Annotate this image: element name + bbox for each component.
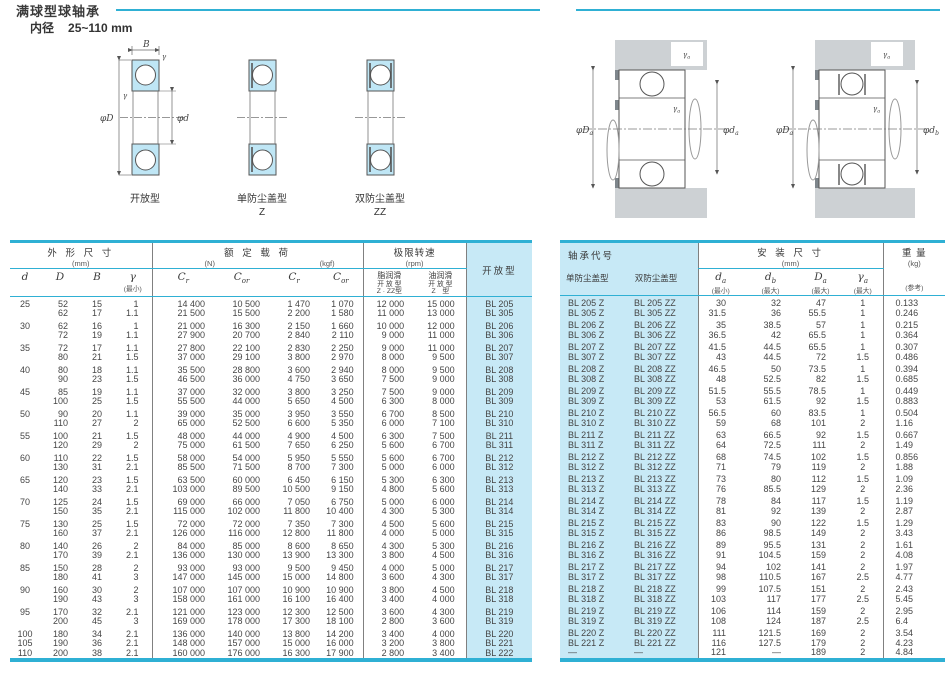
cell: 4 000 <box>415 595 466 605</box>
cell: 41 <box>80 573 114 583</box>
table-row: BL 206 ZBL 206 ZZ3538.55710.215 <box>560 318 945 331</box>
cell: BL 309 Z <box>560 397 626 407</box>
cell: 3 400 <box>415 649 466 659</box>
cell: 78.5 <box>798 384 843 397</box>
table-row: 90160302107 000107 00010 90010 9003 8004… <box>10 583 532 596</box>
table-row: 306216121 00016 3002 1501 66010 00012 00… <box>10 319 532 332</box>
cell: 44 000 <box>214 429 269 442</box>
cell: 6 000 <box>415 463 466 473</box>
cell: 2 <box>114 419 152 429</box>
cell <box>10 485 40 495</box>
cell: 3 950 <box>269 407 319 420</box>
cell: 1.5 <box>843 472 883 485</box>
cell: 120 <box>40 473 80 486</box>
cell: 89 <box>698 538 743 551</box>
cell: 80 <box>40 353 80 363</box>
cell: 52 <box>40 296 80 309</box>
cell: 2 <box>843 648 883 658</box>
bearing-diagram-zz <box>355 60 407 175</box>
cell: 200 <box>40 617 80 627</box>
cell: 110 <box>40 419 80 429</box>
cell: 83 <box>698 516 743 529</box>
cell: 2 <box>843 529 883 539</box>
cell: 2 840 <box>269 331 319 341</box>
cell: 74.5 <box>743 450 798 463</box>
cell: 141 <box>798 560 843 573</box>
col-Da: Da(最大) <box>798 269 843 296</box>
cell: 129 <box>798 485 843 495</box>
cell: BL 306 ZZ <box>626 331 698 341</box>
left-table-body: 255215114 40010 5001 4701 07012 00015 00… <box>10 296 532 658</box>
cell: 187 <box>798 617 843 627</box>
table-row: 3572171.127 80022 1002 8302 2509 00011 0… <box>10 341 532 354</box>
cell: BL 209 ZZ <box>626 384 698 397</box>
cell: 68 <box>698 450 743 463</box>
cell: 60 <box>743 406 798 419</box>
cell: 5 350 <box>319 419 363 429</box>
cell: 12 500 <box>319 605 363 618</box>
cell: 66 000 <box>214 495 269 508</box>
cell: 45 <box>10 385 40 398</box>
cell: 3 600 <box>363 573 415 583</box>
title-rule-left <box>116 9 540 11</box>
table-row: BL 207 ZBL 207 ZZ41.544.565.510.307 <box>560 340 945 353</box>
cell: 18 <box>80 363 114 376</box>
table-row: 160372.1126 000116 00012 80011 8004 0005… <box>10 529 532 539</box>
cell: BL 220 ZZ <box>626 626 698 639</box>
cell <box>10 573 40 583</box>
cell <box>10 375 40 385</box>
cell: 4 800 <box>363 485 415 495</box>
col-da: da(最小) <box>698 269 743 296</box>
cell: 2 <box>843 419 883 429</box>
cell: 1 <box>843 362 883 375</box>
cell: 5 600 <box>363 451 415 464</box>
cell: BL 207 <box>466 341 532 354</box>
cell: 1.1 <box>114 363 152 376</box>
cell: BL 312 ZZ <box>626 463 698 473</box>
cell: BL 319 Z <box>560 617 626 627</box>
cell: 55.5 <box>798 309 843 319</box>
cell: BL 217 Z <box>560 560 626 573</box>
cell: 80 <box>743 472 798 485</box>
cell: 11 000 <box>363 309 415 319</box>
cell: BL 318 <box>466 595 532 605</box>
cell: 2.43 <box>883 582 945 595</box>
cell: 2 <box>114 583 152 596</box>
cell: 25 <box>80 517 114 530</box>
cell: 117 <box>798 494 843 507</box>
cell: 35 <box>80 507 114 517</box>
cell: BL 210 <box>466 407 532 420</box>
cell: BL 209 <box>466 385 532 398</box>
table-row: 11027265 00052 5006 6005 3506 0007 100BL… <box>10 419 532 429</box>
cell: 44 000 <box>214 397 269 407</box>
cell: 85 <box>40 385 80 398</box>
cell: 94 <box>698 560 743 573</box>
cell: 99 <box>698 582 743 595</box>
cell: 1.5 <box>114 353 152 363</box>
cell: 1.5 <box>114 397 152 407</box>
cell: 24 <box>80 495 114 508</box>
cell: 136 000 <box>152 627 214 640</box>
cell: 33 <box>80 485 114 495</box>
cell: 2 <box>114 539 152 552</box>
cell: 2 200 <box>269 309 319 319</box>
cell: 46 500 <box>152 375 214 385</box>
cell: BL 213 ZZ <box>626 472 698 485</box>
cell: BL 205 Z <box>560 296 626 309</box>
cell: 9 000 <box>363 331 415 341</box>
cell: 53 <box>698 397 743 407</box>
cell: 3 <box>114 573 152 583</box>
table-row: 90231.546 50036 0004 7503 6507 5009 000B… <box>10 375 532 385</box>
cell: 0.364 <box>883 331 945 341</box>
cell: BL 212 ZZ <box>626 450 698 463</box>
table-row: BL 216 ZBL 216 ZZ8995.513121.61 <box>560 538 945 551</box>
cell: 130 <box>40 517 80 530</box>
cell: BL 210 Z <box>560 406 626 419</box>
header-load-ratings: 额 定 载 荷 (N) (kgf) <box>152 243 363 269</box>
cell: 1.5 <box>843 397 883 407</box>
cell: 8 700 <box>269 463 319 473</box>
cell: 11 800 <box>269 507 319 517</box>
cell: 149 <box>798 529 843 539</box>
cell: 26 <box>80 539 114 552</box>
cell: 6 150 <box>319 473 363 486</box>
cell: 3 550 <box>319 407 363 420</box>
table-row: BL 312 ZBL 312 ZZ717911921.88 <box>560 463 945 473</box>
cell: — <box>626 648 698 658</box>
dim-phiD-label: φD <box>100 114 114 124</box>
cell: 80 <box>40 363 80 376</box>
cell: 12 000 <box>363 296 415 309</box>
cell: BL 218 <box>466 583 532 596</box>
cell: 22 <box>80 451 114 464</box>
cell: 1.29 <box>883 516 945 529</box>
table-row: 4080181.135 50028 8003 6002 9408 0009 50… <box>10 363 532 376</box>
cell: 157 000 <box>214 639 269 649</box>
mounting-dimensions-table: 轴承代号 单防尘盖型 双防尘盖型 安 装 尺 寸 (mm) 重 量 (kg) (… <box>560 240 945 662</box>
cell: 148 000 <box>152 639 214 649</box>
cell: 100 <box>40 397 80 407</box>
cell: 4 500 <box>363 517 415 530</box>
cell: 60 000 <box>214 473 269 486</box>
bearing-diagram-z <box>237 60 289 175</box>
bearing-cross-section-diagrams: B γ γ φD φd <box>92 38 472 238</box>
cell <box>10 463 40 473</box>
cell: 95.5 <box>743 538 798 551</box>
cell: 81 <box>698 507 743 517</box>
cell: 16 300 <box>269 649 319 659</box>
cell: 28 800 <box>214 363 269 376</box>
cell: 16 300 <box>214 319 269 332</box>
cell: 1 660 <box>319 319 363 332</box>
table-row: 140332.1103 00089 50010 5009 1504 8005 6… <box>10 485 532 495</box>
cell: 44.5 <box>743 353 798 363</box>
cell: 79 <box>743 463 798 473</box>
cell: 4 500 <box>319 429 363 442</box>
cell: 4 000 <box>363 529 415 539</box>
cell: 55 <box>10 429 40 442</box>
cell: 103 <box>698 595 743 605</box>
cell: BL 206 <box>466 319 532 332</box>
bearing-diagram-open: B γ γ φD φd <box>100 40 189 175</box>
col-d: d <box>10 269 40 297</box>
cell: 48 <box>698 375 743 385</box>
cell: 7 350 <box>269 517 319 530</box>
cell: 23 <box>80 473 114 486</box>
cell: 0.486 <box>883 353 945 363</box>
cell: 5 550 <box>319 451 363 464</box>
cell: 7 300 <box>319 463 363 473</box>
cell: BL 314 Z <box>560 507 626 517</box>
cell: 32 000 <box>214 385 269 398</box>
cell: 1 <box>843 296 883 309</box>
cell: 50 <box>10 407 40 420</box>
cell: 160 <box>40 583 80 596</box>
cell: 140 <box>40 485 80 495</box>
cell: BL 312 <box>466 463 532 473</box>
col-r: γ(最小) <box>114 269 152 297</box>
cell: 8 600 <box>269 539 319 552</box>
table-row: 190433158 000161 00016 10016 4003 4004 0… <box>10 595 532 605</box>
cell: 9 500 <box>415 353 466 363</box>
cell: 55.5 <box>743 384 798 397</box>
cell: BL 221 ZZ <box>626 639 698 649</box>
cell: 46.5 <box>698 362 743 375</box>
cell: BL 218 Z <box>560 582 626 595</box>
cell: 2 800 <box>363 649 415 659</box>
cell: 36.5 <box>698 331 743 341</box>
cell: BL 216 ZZ <box>626 538 698 551</box>
cell: 65.5 <box>798 340 843 353</box>
cell: BL 319 <box>466 617 532 627</box>
cell <box>10 507 40 517</box>
col-ra: γa(最大) <box>843 269 883 296</box>
cell: 35 <box>698 318 743 331</box>
table-row: BL 308 ZBL 308 ZZ4852.5821.50.685 <box>560 375 945 385</box>
cell: 38 <box>80 649 114 659</box>
cell: 5 600 <box>415 517 466 530</box>
cell: 3 400 <box>363 595 415 605</box>
dim-B-label: B <box>142 40 150 50</box>
cell: 72 <box>40 341 80 354</box>
cell: BL 307 ZZ <box>626 353 698 363</box>
cell: 71 500 <box>214 463 269 473</box>
cell: 1.5 <box>843 450 883 463</box>
cell: 0.685 <box>883 375 945 385</box>
cell: BL 212 <box>466 451 532 464</box>
cell <box>10 309 40 319</box>
cell: BL 214 Z <box>560 494 626 507</box>
cell: BL 319 ZZ <box>626 617 698 627</box>
cell: 8 650 <box>319 539 363 552</box>
cell: 2 <box>843 441 883 451</box>
cell: 102 000 <box>214 507 269 517</box>
cell: BL 311 ZZ <box>626 441 698 451</box>
cell: 159 <box>798 604 843 617</box>
cell: BL 211 Z <box>560 428 626 441</box>
cell: 17 <box>80 341 114 354</box>
cell: BL 318 ZZ <box>626 595 698 605</box>
cell: 35 500 <box>152 363 214 376</box>
cell: 9 000 <box>363 341 415 354</box>
cell: 4 300 <box>415 605 466 618</box>
cell <box>10 441 40 451</box>
cell: 123 000 <box>214 605 269 618</box>
cell: 4.77 <box>883 573 945 583</box>
table-row: BL 318 ZBL 318 ZZ1031171772.55.45 <box>560 595 945 605</box>
cell: 31 <box>80 463 114 473</box>
cell: 7 500 <box>415 429 466 442</box>
cell: BL 208 Z <box>560 362 626 375</box>
cell: 1.1 <box>114 341 152 354</box>
table-row: BL 314 ZBL 314 ZZ819213922.87 <box>560 507 945 517</box>
cell: 34 <box>80 627 114 640</box>
cell: 167 <box>798 573 843 583</box>
cell: 55 500 <box>152 397 214 407</box>
caption-z-suffix: Z <box>259 207 265 218</box>
cell: 62 <box>40 309 80 319</box>
cell: 9 000 <box>415 375 466 385</box>
cell: 5 000 <box>415 561 466 574</box>
cell: 3.54 <box>883 626 945 639</box>
cell: 13 000 <box>415 309 466 319</box>
cell: BL 213 <box>466 473 532 486</box>
cell: 7 500 <box>363 385 415 398</box>
table-row: 72191.127 90020 7002 8402 1109 00011 000… <box>10 331 532 341</box>
cell: 4 300 <box>363 539 415 552</box>
table-row: 200453169 000178 00017 30018 1002 8003 6… <box>10 617 532 627</box>
cell: BL 310 Z <box>560 419 626 429</box>
table-row: BL 219 ZBL 219 ZZ10611415922.95 <box>560 604 945 617</box>
cell: 1.5 <box>114 517 152 530</box>
cell: 2 <box>114 441 152 451</box>
col-cor-n: Cor <box>214 269 269 297</box>
cell: 38.5 <box>743 318 798 331</box>
cell: 1 <box>843 384 883 397</box>
cell: 3 250 <box>319 385 363 398</box>
table-row: 150352.1115 000102 00011 80010 4004 3005… <box>10 507 532 517</box>
cell: BL 305 <box>466 309 532 319</box>
cell: 36 <box>743 309 798 319</box>
cell: 2 <box>843 538 883 551</box>
cell: BL 208 ZZ <box>626 362 698 375</box>
cell: BL 309 <box>466 397 532 407</box>
cell: 2.1 <box>114 529 152 539</box>
cell: BL 206 ZZ <box>626 318 698 331</box>
cell: BL 313 ZZ <box>626 485 698 495</box>
cell: 35 000 <box>214 407 269 420</box>
bore-value: 25~110 mm <box>68 21 132 35</box>
col-grease-speed: 脂润滑 开 放 型 Z · ZZ型 <box>363 269 415 297</box>
cell: 47 <box>798 296 843 309</box>
table-row: 105190362.1148 000157 00015 00016 0003 2… <box>10 639 532 649</box>
cell: 158 000 <box>152 595 214 605</box>
cell: 124 <box>743 617 798 627</box>
cell: 16 100 <box>269 595 319 605</box>
cell: BL 312 Z <box>560 463 626 473</box>
cell: 2 110 <box>319 331 363 341</box>
cell: 82 <box>798 375 843 385</box>
table-row: 100251.555 50044 0005 6504 5006 3008 000… <box>10 397 532 407</box>
cell: 85 000 <box>214 539 269 552</box>
cell: 5 300 <box>415 507 466 517</box>
col-D: D <box>40 269 80 297</box>
cell: 159 <box>798 551 843 561</box>
cell: 116 000 <box>214 529 269 539</box>
cell: 12 300 <box>269 605 319 618</box>
cell: 17 <box>80 309 114 319</box>
cell: 102 <box>798 450 843 463</box>
cell: 180 <box>40 627 80 640</box>
cell: 121 <box>698 648 743 658</box>
cell: 15 500 <box>214 309 269 319</box>
cell: 25 <box>10 296 40 309</box>
header-dimensions: 外 形 尺 寸 (mm) <box>10 243 152 269</box>
cell: 2.95 <box>883 604 945 617</box>
cell: 6 600 <box>269 419 319 429</box>
cell: BL 307 Z <box>560 353 626 363</box>
mounting-dimension-diagrams: φDa φda γa γa φDa φdb γa γa <box>575 38 945 223</box>
cell: 44.5 <box>743 340 798 353</box>
cell: 2.1 <box>114 507 152 517</box>
cell: 2.1 <box>114 463 152 473</box>
dim-phidb-label: φdb <box>923 126 939 137</box>
cell: 1.1 <box>114 309 152 319</box>
table-row: BL 315 ZBL 315 ZZ8698.514923.43 <box>560 529 945 539</box>
cell: — <box>743 648 798 658</box>
cell: 2.36 <box>883 485 945 495</box>
cell: 121.5 <box>743 626 798 639</box>
cell: 104.5 <box>743 551 798 561</box>
cell: 5 000 <box>363 463 415 473</box>
cell: 115 000 <box>152 507 214 517</box>
cell: 72 000 <box>152 517 214 530</box>
cell: BL 221 Z <box>560 639 626 649</box>
cell: 2 <box>843 626 883 639</box>
cell: BL 308 ZZ <box>626 375 698 385</box>
table-row: 12029275 00061 5007 6506 2505 6006 700BL… <box>10 441 532 451</box>
cell: 52 500 <box>214 419 269 429</box>
cell: 14 200 <box>319 627 363 640</box>
cell: 5 300 <box>415 539 466 552</box>
cell: BL 215 Z <box>560 516 626 529</box>
cell: 92 <box>743 507 798 517</box>
cell: 139 <box>798 507 843 517</box>
cell: 29 100 <box>214 353 269 363</box>
cell: 170 <box>40 551 80 561</box>
cell: 161 000 <box>214 595 269 605</box>
cell: 5 600 <box>363 441 415 451</box>
right-table-body: BL 205 ZBL 205 ZZ30324710.133BL 305 ZBL … <box>560 296 945 658</box>
table-row: 95170322.1121 000123 00012 30012 5003 60… <box>10 605 532 618</box>
cell: 11 800 <box>319 529 363 539</box>
cell: 84 000 <box>152 539 214 552</box>
cell: 29 <box>80 441 114 451</box>
cell: 72 <box>798 353 843 363</box>
table-row: BL 215 ZBL 215 ZZ83901221.51.29 <box>560 516 945 529</box>
cell: 136 000 <box>152 551 214 561</box>
cell: BL 214 ZZ <box>626 494 698 507</box>
cell: 0.883 <box>883 397 945 407</box>
cell: 20 700 <box>214 331 269 341</box>
cell: 5 950 <box>269 451 319 464</box>
cell: 0.667 <box>883 428 945 441</box>
cell: BL 216 <box>466 539 532 552</box>
cell: 107 000 <box>214 583 269 596</box>
